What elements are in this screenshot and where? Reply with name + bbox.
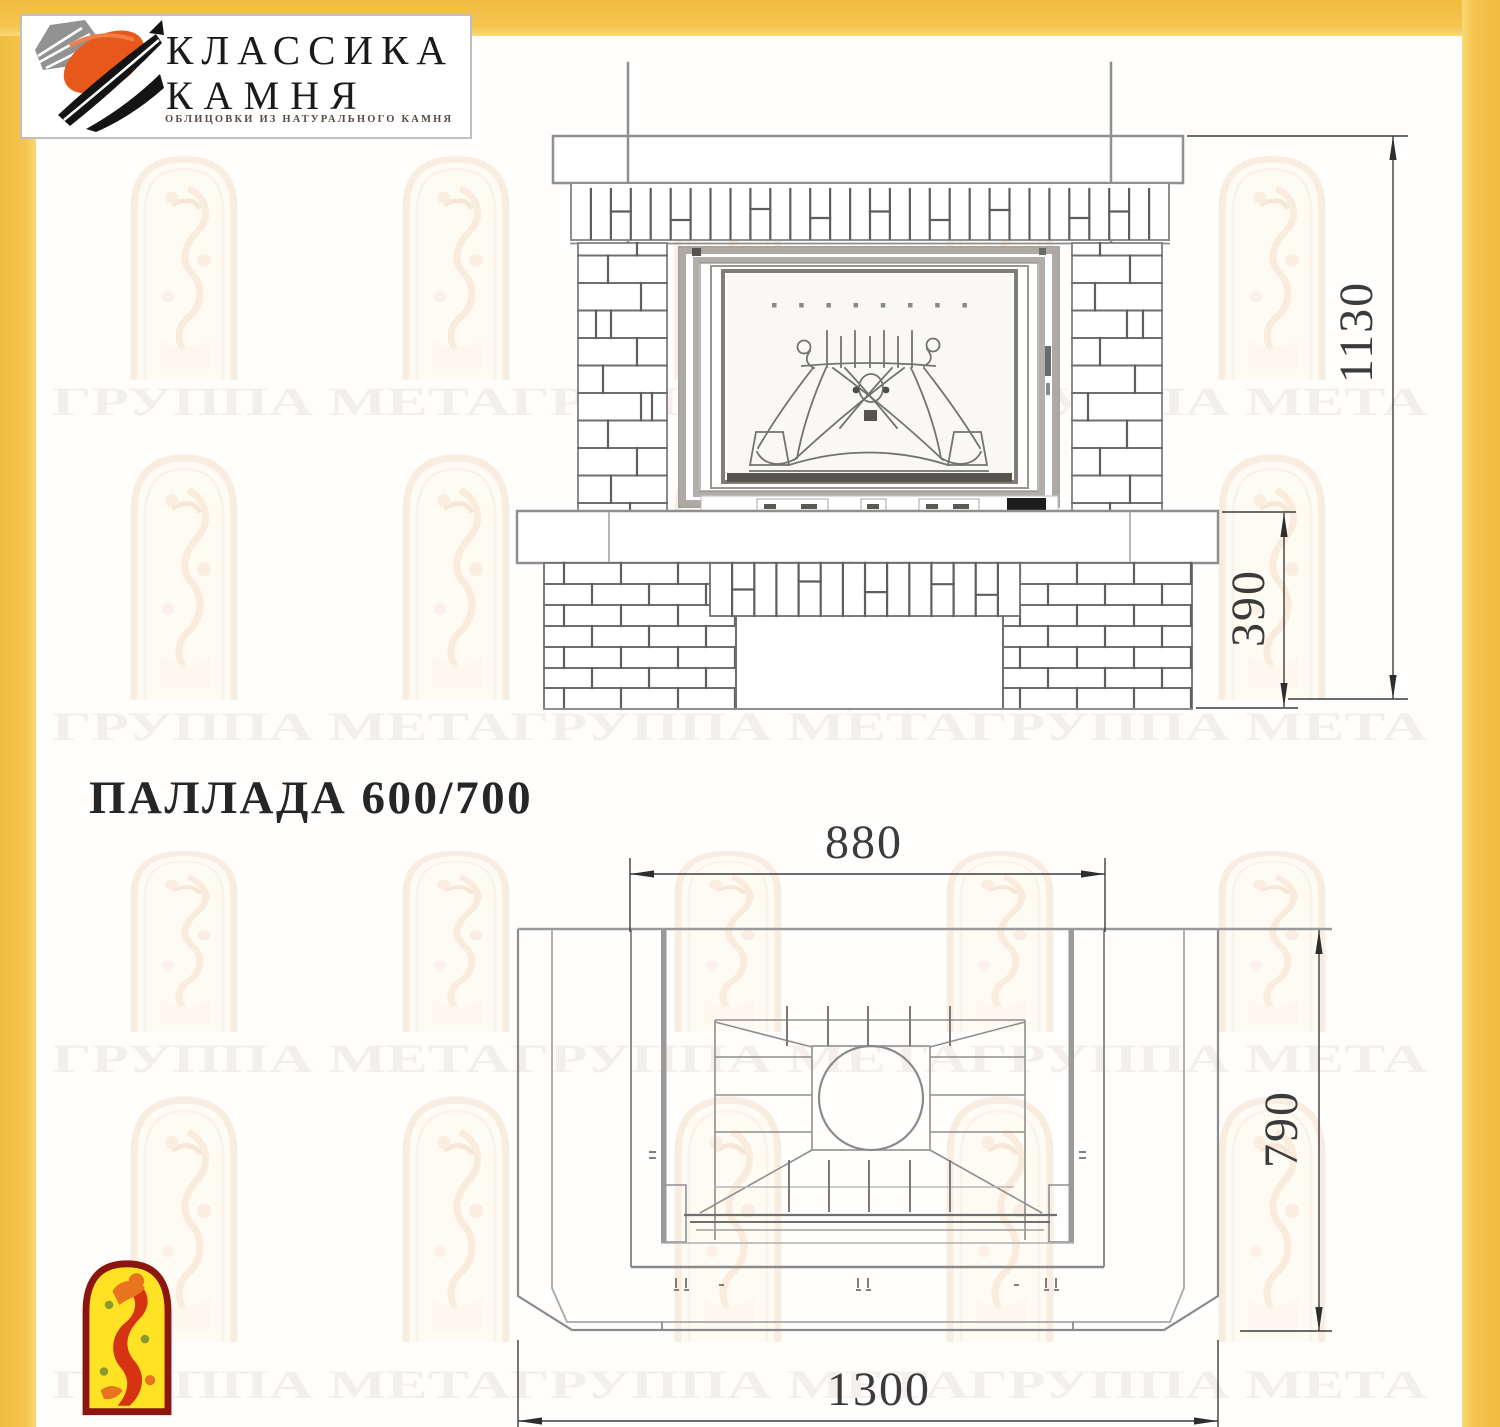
svg-text:390: 390 — [1222, 569, 1275, 647]
svg-text:790: 790 — [1255, 1090, 1308, 1168]
svg-text:880: 880 — [825, 816, 903, 869]
svg-text:ГРУППА МЕТАГРУППА МЕТАГРУППА М: ГРУППА МЕТАГРУППА МЕТАГРУППА МЕТА — [52, 1362, 1427, 1407]
svg-text:ГРУППА МЕТАГРУППА МЕТАГРУППА М: ГРУППА МЕТАГРУППА МЕТАГРУППА МЕТА — [52, 1036, 1427, 1081]
svg-text:1300: 1300 — [827, 1363, 931, 1416]
svg-text:ГРУППА МЕТАГРУППА МЕТАГРУППА М: ГРУППА МЕТАГРУППА МЕТАГРУППА МЕТА — [52, 704, 1427, 749]
svg-text:1130: 1130 — [1330, 281, 1383, 383]
